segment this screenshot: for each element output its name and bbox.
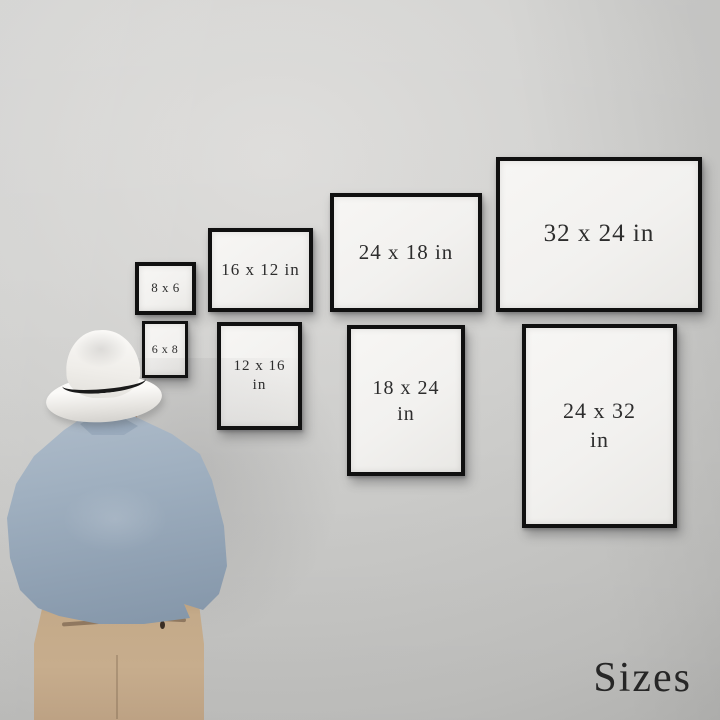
frame-paper: 24 x 32 in xyxy=(526,328,673,524)
frame-18x24: 18 x 24 in xyxy=(347,325,465,476)
frame-paper: 16 x 12 in xyxy=(212,232,309,308)
frame-size-label: 18 x 24 in xyxy=(366,375,446,427)
man-figure xyxy=(0,325,240,720)
frame-paper: 18 x 24 in xyxy=(351,329,461,472)
caption-sizes: Sizes xyxy=(593,654,692,702)
frame-paper: 8 x 6 xyxy=(139,266,192,311)
blue-shirt xyxy=(4,408,230,626)
frame-8x6: 8 x 6 xyxy=(135,262,196,315)
frame-32x24: 32 x 24 in xyxy=(496,157,702,312)
frame-size-label: 32 x 24 in xyxy=(544,218,655,251)
frame-24x18: 24 x 18 in xyxy=(330,193,482,312)
frame-size-label: 24 x 32 in xyxy=(553,397,647,454)
wall: 8 x 6 16 x 12 in 24 x 18 in 32 x 24 in 6… xyxy=(0,0,720,720)
frame-size-label: 8 x 6 xyxy=(151,280,180,297)
frame-24x32: 24 x 32 in xyxy=(522,324,677,528)
pants-seam xyxy=(116,655,118,719)
frame-size-label: 16 x 12 in xyxy=(221,259,299,281)
frame-16x12: 16 x 12 in xyxy=(208,228,313,312)
pocket-button xyxy=(160,621,165,629)
frame-paper: 32 x 24 in xyxy=(500,161,698,308)
frame-paper: 24 x 18 in xyxy=(334,197,478,308)
frame-size-label: 24 x 18 in xyxy=(359,239,454,266)
